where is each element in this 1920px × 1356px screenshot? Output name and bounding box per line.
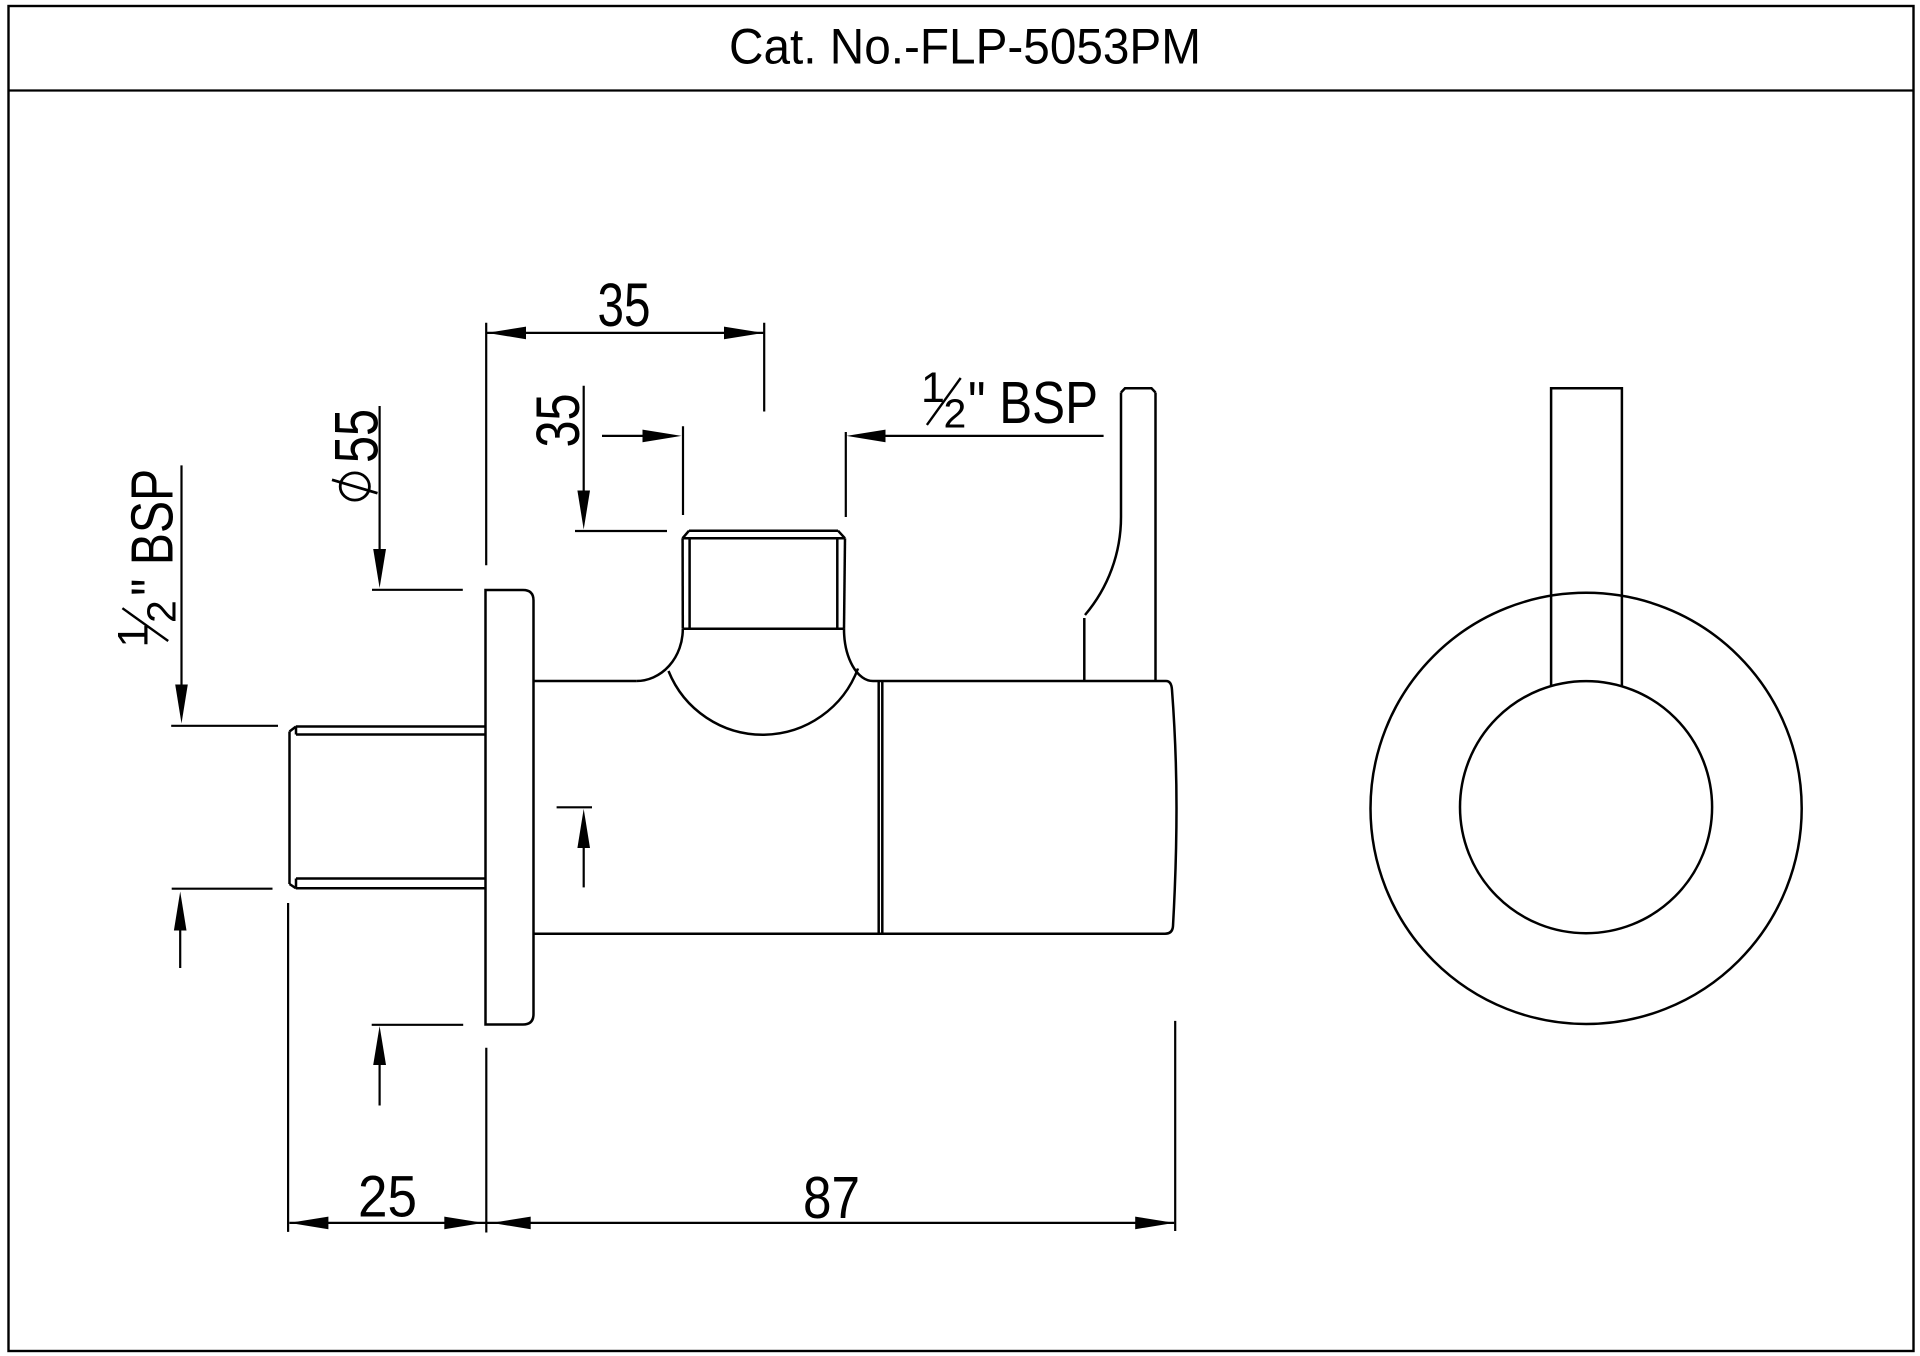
svg-text:" BSP: " BSP (120, 469, 186, 596)
svg-text:Cat. No.-FLP-5053PM: Cat. No.-FLP-5053PM (729, 18, 1201, 75)
svg-text:2: 2 (139, 600, 185, 623)
svg-text:87: 87 (803, 1165, 860, 1231)
svg-text:2: 2 (944, 391, 967, 437)
svg-text:35: 35 (524, 394, 592, 448)
svg-text:55: 55 (323, 409, 391, 463)
svg-text:35: 35 (598, 271, 651, 339)
svg-text:" BSP: " BSP (968, 370, 1098, 436)
svg-text:25: 25 (358, 1165, 417, 1230)
